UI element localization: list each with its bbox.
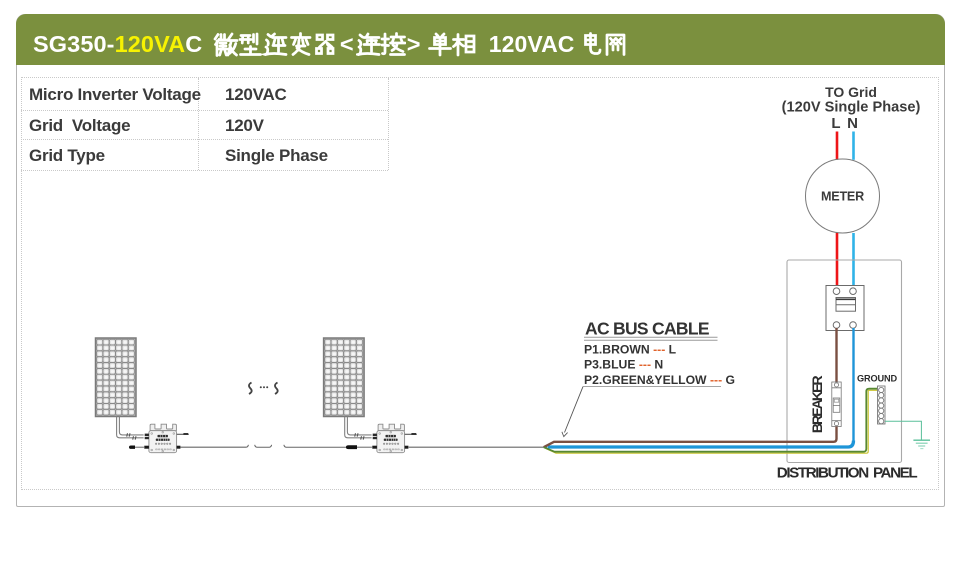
svg-text:P2.GREEN&YELLOW --- G: P2.GREEN&YELLOW --- G [584,373,735,387]
svg-text:L: L [831,115,840,132]
svg-text:(120V Single Phase): (120V Single Phase) [782,100,921,116]
svg-text:TO Grid: TO Grid [825,84,877,100]
svg-text:BREAKER: BREAKER [809,375,825,433]
svg-text:AC BUS CABLE: AC BUS CABLE [585,319,709,339]
svg-text:DISTRIBUTION PANEL: DISTRIBUTION PANEL [777,465,918,482]
svg-text:P3.BLUE --- N: P3.BLUE --- N [584,358,663,372]
svg-text:N: N [847,115,858,132]
svg-text:GROUND: GROUND [857,374,897,384]
svg-text:P1.BROWN --- L: P1.BROWN --- L [584,343,677,357]
svg-text:METER: METER [821,190,864,204]
